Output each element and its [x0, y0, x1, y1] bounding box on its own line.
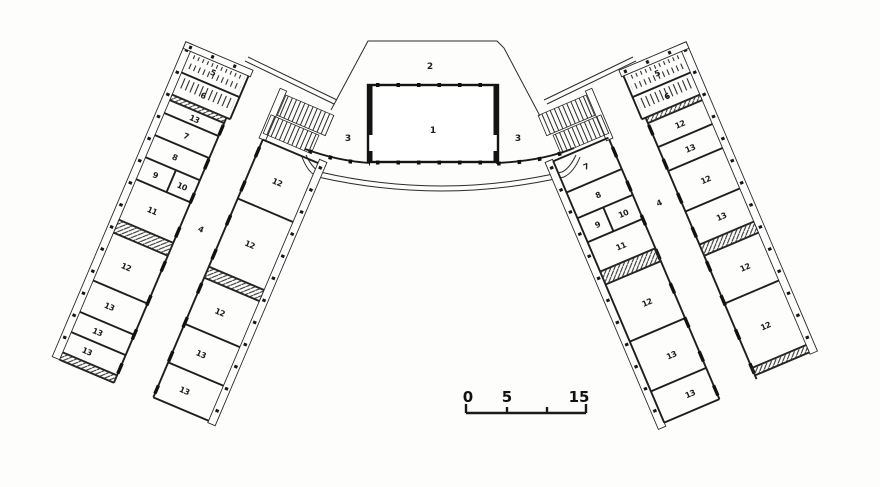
room-label: 11: [146, 205, 160, 218]
room-label: 12: [739, 262, 752, 274]
corridor-right-label: 3: [515, 134, 521, 144]
room-label: 12: [674, 119, 687, 131]
scale-label-15: 15: [569, 388, 590, 406]
room-label: 13: [194, 348, 207, 360]
corridor-left-label: 3: [345, 134, 351, 144]
right-wing: 5 6 12 13 12 13 12 12 4 7 8 9 10 11 12 1…: [523, 42, 821, 430]
room-label: 12: [213, 306, 226, 318]
hall-label: 1: [430, 126, 436, 136]
room-label: 10: [175, 181, 189, 194]
right-hatch-band: [600, 248, 661, 284]
room-label: 11: [615, 240, 629, 253]
room-label: 9: [594, 219, 603, 230]
scale-label-5: 5: [502, 388, 512, 406]
corridor-label: 4: [655, 198, 664, 209]
floor-plan-page: 1 2 3 3 5 6 13 7 8 9 10 11 12 13 13 13 4: [0, 0, 880, 487]
hall-outline: [368, 85, 498, 162]
room-label: 13: [684, 388, 697, 400]
right-hatch-band: [752, 345, 809, 375]
room-label: 12: [271, 176, 284, 188]
right-hatch-band: [699, 222, 758, 256]
right-outer-facade: [679, 42, 818, 354]
right-inner-facade: [545, 159, 666, 429]
left-hatch-band: [114, 220, 174, 256]
room-label: 12: [641, 297, 654, 309]
room-label: 12: [759, 320, 772, 332]
room-label: 10: [617, 207, 631, 220]
left-hatch-band: [204, 267, 264, 301]
room-label: 9: [151, 170, 160, 181]
room-label: 13: [80, 346, 93, 358]
floor-plan-canvas: 1 2 3 3 5 6 13 7 8 9 10 11 12 13 13 13 4: [0, 0, 880, 487]
room-label: 13: [178, 385, 191, 397]
scale-bar: 0 5 15: [463, 388, 590, 413]
room-label: 7: [582, 162, 590, 172]
room-label: 13: [684, 143, 697, 155]
room-label: 12: [120, 261, 133, 273]
room-label: 13: [715, 211, 728, 223]
room-label: 13: [103, 301, 116, 313]
room-label: 13: [91, 326, 104, 338]
left-wing: 5 6 13 7 8 9 10 11 12 13 13 13 4 12 12 1…: [52, 42, 349, 426]
room-label: 12: [699, 174, 712, 186]
room-label: 12: [243, 239, 256, 251]
corridor-label: 4: [197, 224, 206, 235]
stage-label: 2: [427, 62, 433, 72]
scale-label-0: 0: [463, 388, 473, 406]
room-label: 8: [594, 190, 603, 201]
room-label: 8: [171, 152, 180, 163]
room-label: 7: [182, 131, 190, 141]
room-label: 13: [665, 349, 678, 361]
left-outer-facade: [52, 42, 193, 360]
left-inner-facade: [208, 159, 327, 425]
